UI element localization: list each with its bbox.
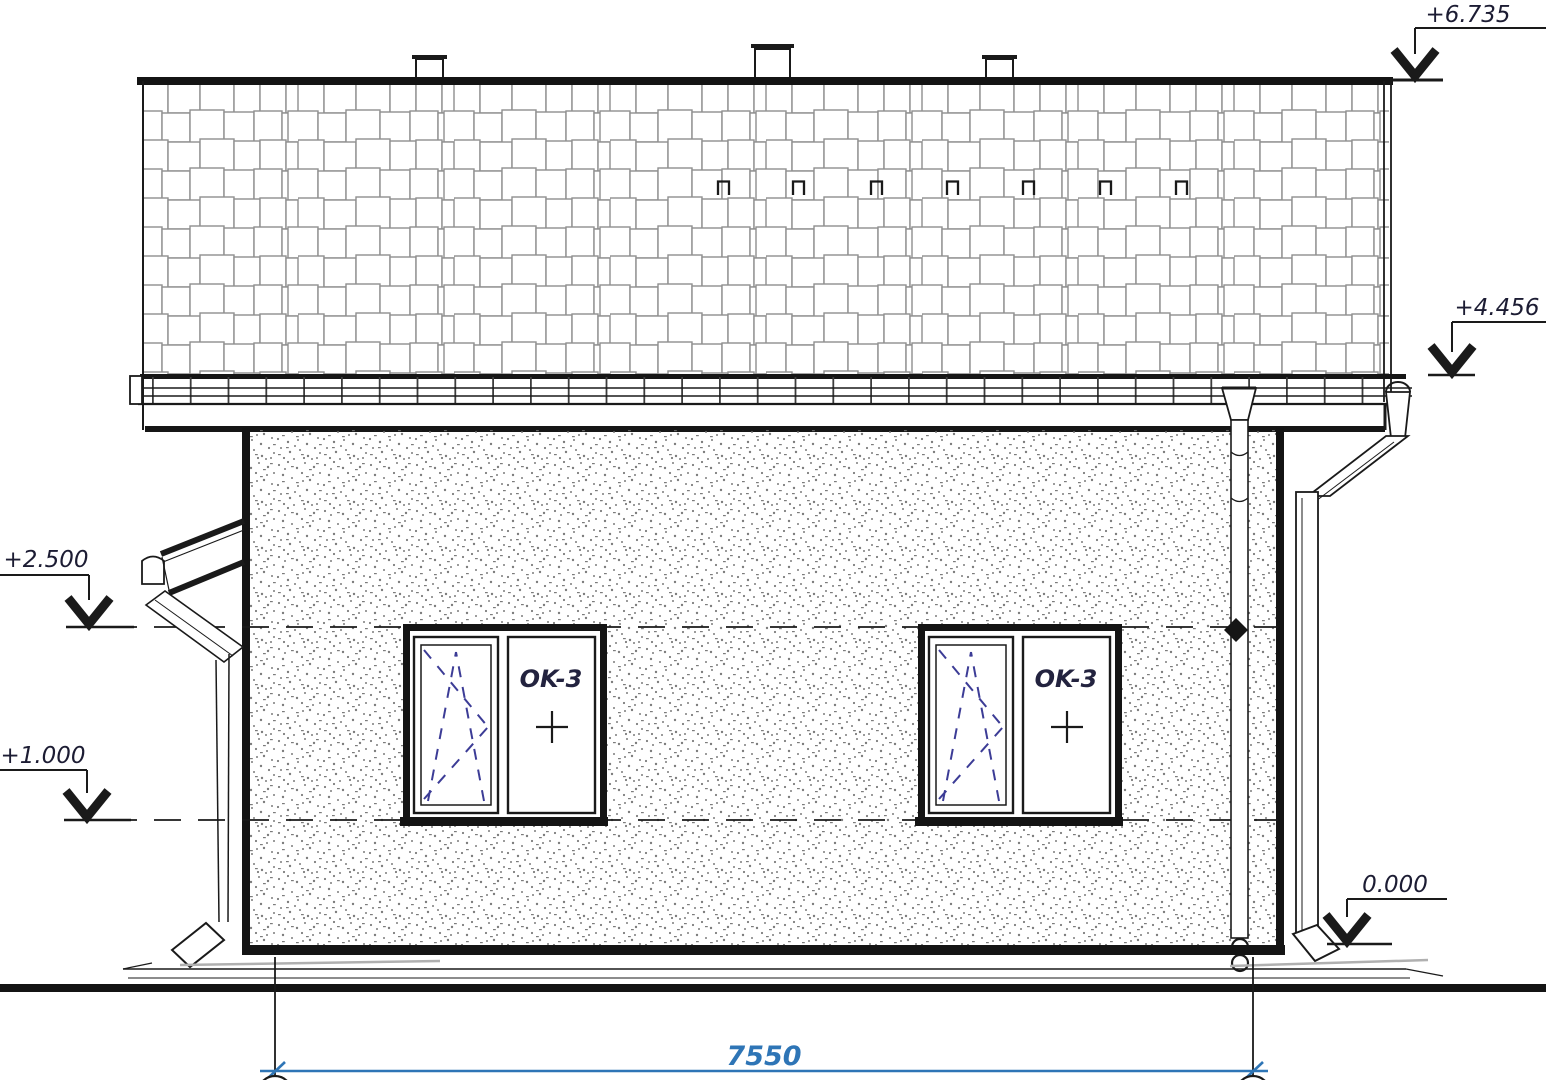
roof-bottom-edge	[140, 374, 1406, 379]
downspout-left	[172, 654, 229, 967]
level-arrow-icon	[68, 598, 110, 624]
axis-bubble	[258, 1076, 292, 1080]
elevation-value: +4.456	[1454, 295, 1539, 321]
gutter-endcap-left	[130, 376, 142, 404]
elevation-marker-ridge: +6.735	[1390, 2, 1546, 80]
elevation-marker-sill: +1.000	[0, 743, 131, 820]
canopy-edge	[161, 521, 244, 554]
elevation-marker-eave: +4.456	[1428, 295, 1546, 375]
axis-bubble	[1236, 1076, 1270, 1080]
downspout-shoe	[172, 923, 224, 967]
window-jamb	[403, 624, 410, 826]
casement-sash	[421, 645, 491, 805]
downspout-diagonal	[1308, 436, 1408, 496]
roof	[137, 46, 1393, 430]
elevation-value: +6.735	[1425, 2, 1510, 28]
level-arrow-icon	[1326, 915, 1368, 941]
level-arrow-icon	[66, 791, 108, 817]
elevation-canvas: OK-3 OK-3	[0, 0, 1546, 1080]
gutter-funnel	[1386, 392, 1410, 438]
wall-stucco-texture	[246, 430, 1278, 947]
elevation-marker-lintel: +2.500	[0, 547, 134, 627]
ground-line	[0, 984, 1546, 992]
canopy-edge-lower	[169, 562, 244, 593]
wall	[242, 428, 1284, 955]
elevation-value: +1.000	[0, 743, 85, 769]
wall-base-edge	[242, 945, 1285, 955]
roof-vent-icon	[982, 57, 1017, 80]
window-lintel	[918, 624, 1122, 631]
downspout-funnel	[1222, 388, 1256, 420]
roof-vent-icon	[412, 57, 447, 80]
dimension-7550: 7550	[258, 957, 1270, 1080]
wall-corner-left	[242, 428, 250, 955]
apron-wedge	[1406, 969, 1443, 976]
downspout-inner-line	[1316, 442, 1394, 501]
window-jamb	[600, 624, 607, 826]
window-lintel	[403, 624, 607, 631]
eave-gutter	[130, 374, 1412, 432]
window-tag: OK-3	[1035, 665, 1098, 693]
chute-inner-line	[155, 600, 233, 656]
downspout-pipe	[1296, 492, 1318, 937]
apron-wedge	[123, 963, 152, 969]
elevation-value: +2.500	[3, 547, 88, 573]
window-jamb	[1115, 624, 1122, 826]
window-ok3-right: OK-3	[915, 624, 1123, 826]
window-sill	[400, 817, 608, 826]
dimension-value: 7550	[726, 1041, 801, 1072]
roof-shingle-field	[142, 85, 1389, 376]
window-jamb	[918, 624, 925, 826]
entrance-canopy	[142, 521, 244, 662]
ground-shading	[180, 961, 440, 965]
elevation-value: 0.000	[1362, 872, 1428, 898]
window-sill	[915, 817, 1123, 826]
downspout-pipe	[1231, 420, 1248, 938]
canopy-gutter-funnel	[142, 557, 164, 585]
ground-shading	[1230, 960, 1428, 966]
ridge-cap	[137, 77, 1393, 85]
downspout-pipe-line	[216, 660, 219, 922]
elevation-drawing: OK-3 OK-3	[0, 0, 1546, 1080]
wall-corner-right	[1276, 428, 1284, 955]
window-ok3-left: OK-3	[400, 624, 608, 826]
casement-sash	[936, 645, 1006, 805]
window-tag: OK-3	[520, 665, 583, 693]
elevation-marker-ground: 0.000	[1326, 872, 1447, 944]
downspout-pipe-line	[228, 654, 229, 922]
